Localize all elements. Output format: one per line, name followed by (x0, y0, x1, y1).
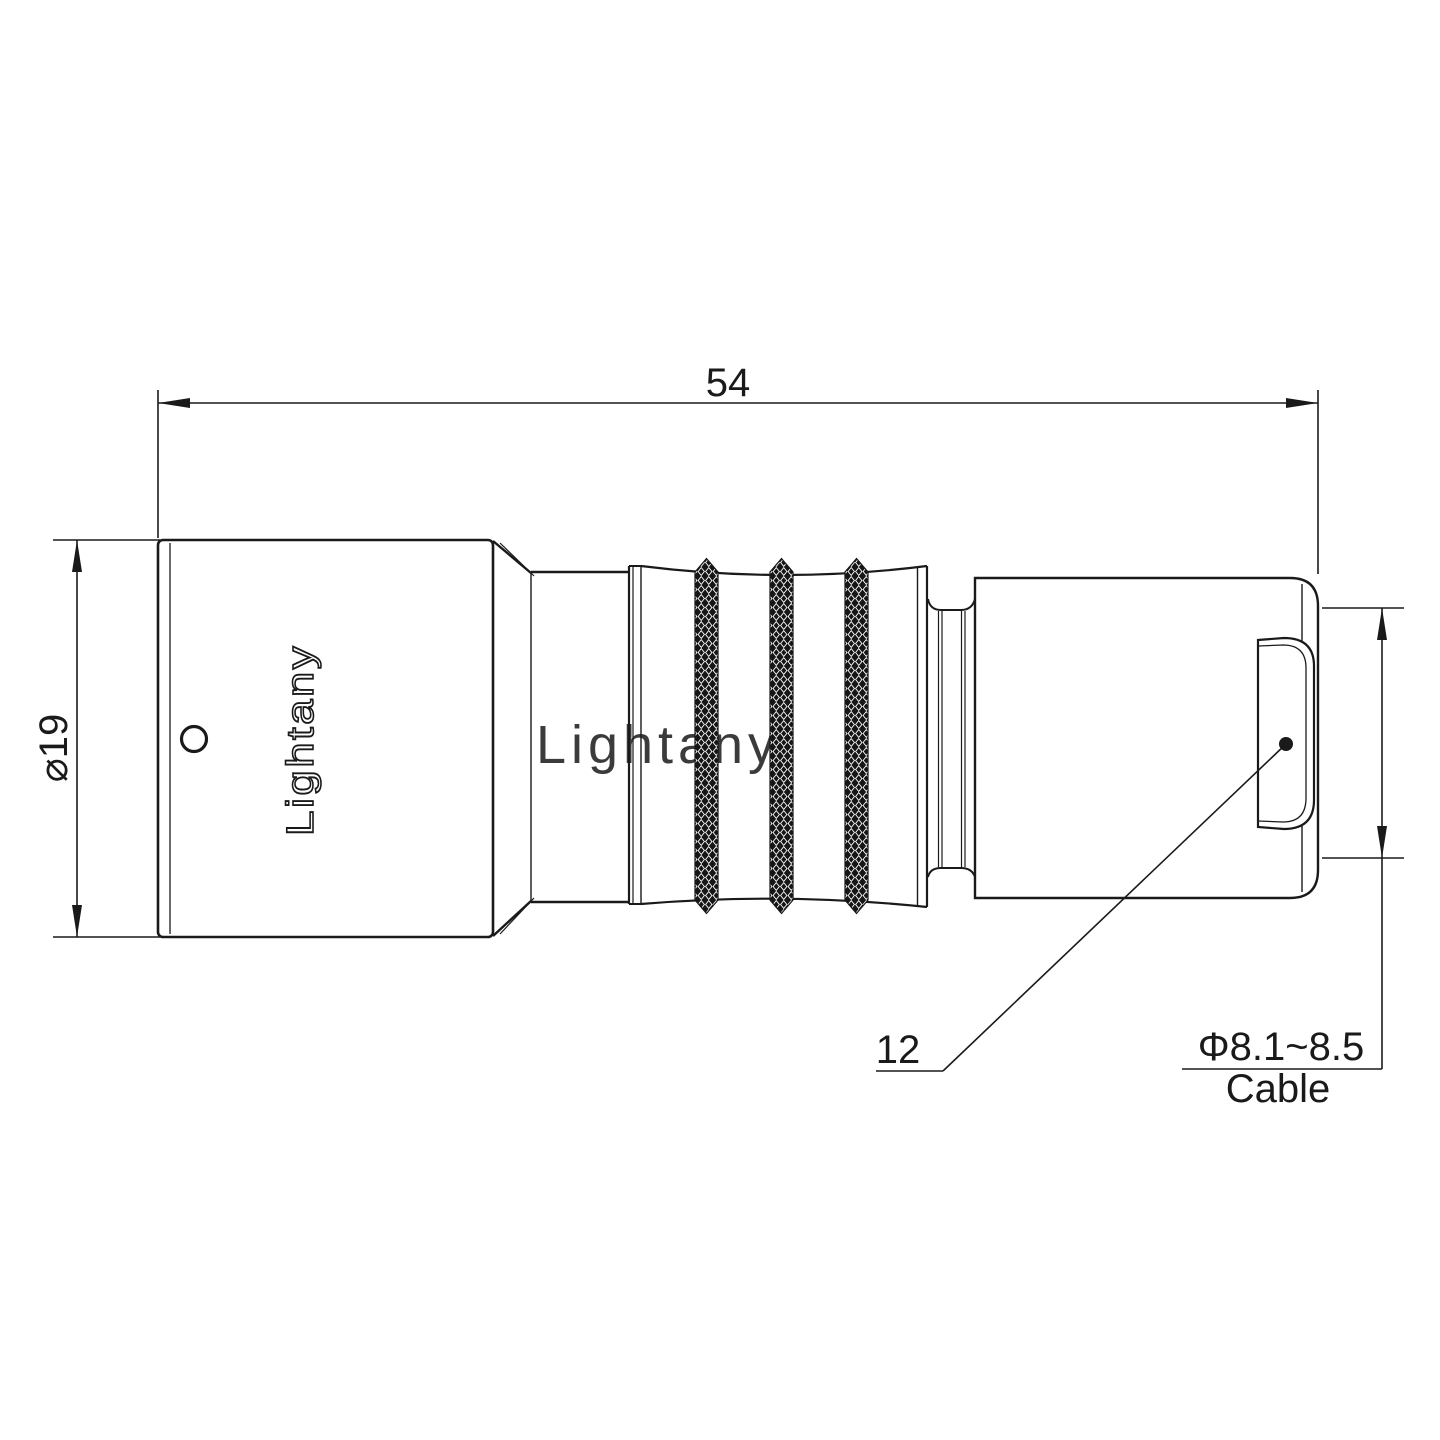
dim-54-label: 54 (706, 361, 751, 405)
dim-19-label: ⌀19 (32, 714, 76, 783)
cable-word-label: Cable (1226, 1067, 1331, 1111)
coupling-nut-outline (158, 540, 493, 937)
dim-19-arrow-bottom (72, 905, 82, 937)
dim-cable-arrow-bottom (1377, 826, 1387, 858)
knurl-band-1 (695, 559, 718, 914)
engraved-brand-text: Lightany (280, 644, 322, 836)
neck-top-edge (928, 599, 975, 610)
dim-54-arrow-left (158, 398, 190, 408)
knurl-band-2 (770, 559, 793, 914)
dim-54-arrow-right (1286, 398, 1318, 408)
taper-bottom-inner-edge (500, 898, 534, 934)
dim-cable-arrow-top (1377, 608, 1387, 640)
cable-diameter-label: Φ8.1~8.5 (1198, 1025, 1364, 1069)
taper-bottom-edge (493, 901, 531, 936)
taper-top-inner-edge (500, 543, 534, 576)
dim-19-arrow-top (72, 540, 82, 572)
watermark-text: Lightany (536, 715, 778, 775)
knurl-band-3 (845, 559, 868, 914)
connector-drawing-canvas: Lightany Lightany (0, 0, 1440, 1440)
technical-drawing-page: Lightany Lightany (0, 0, 1440, 1440)
dim-12-label: 12 (876, 1028, 921, 1072)
neck-bottom-edge (928, 868, 975, 877)
